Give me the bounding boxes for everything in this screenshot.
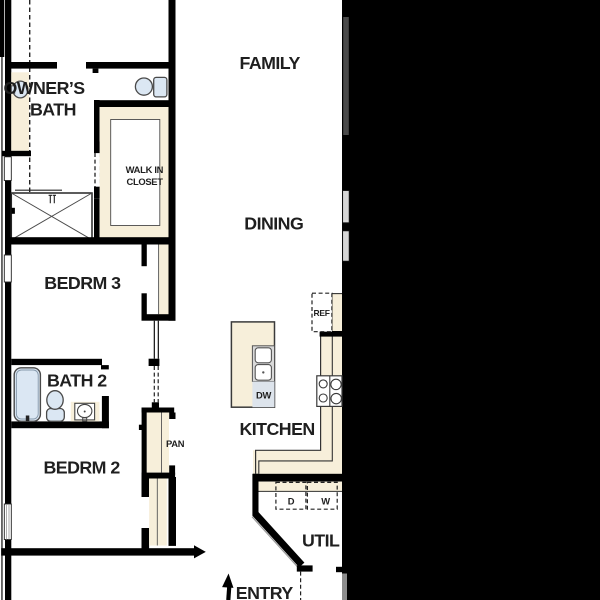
svg-text:CLOSET: CLOSET <box>126 176 163 187</box>
svg-text:BEDRM 2: BEDRM 2 <box>44 457 121 477</box>
svg-text:ENTRY: ENTRY <box>236 583 294 600</box>
svg-text:D: D <box>288 496 295 507</box>
svg-text:W: W <box>321 496 330 507</box>
svg-text:OWNER’S: OWNER’S <box>4 78 86 98</box>
svg-text:FAMILY: FAMILY <box>240 53 301 73</box>
svg-text:KITCHEN: KITCHEN <box>240 419 315 439</box>
svg-text:REF: REF <box>314 308 330 318</box>
svg-text:BATH 2: BATH 2 <box>47 371 107 391</box>
svg-text:DW: DW <box>256 389 271 400</box>
svg-text:DINING: DINING <box>244 214 303 234</box>
svg-text:WALK IN: WALK IN <box>126 164 164 175</box>
svg-text:BATH: BATH <box>30 100 76 120</box>
svg-text:BEDRM 3: BEDRM 3 <box>44 273 121 293</box>
svg-text:PAN: PAN <box>166 438 185 449</box>
svg-text:UTIL: UTIL <box>302 531 340 551</box>
